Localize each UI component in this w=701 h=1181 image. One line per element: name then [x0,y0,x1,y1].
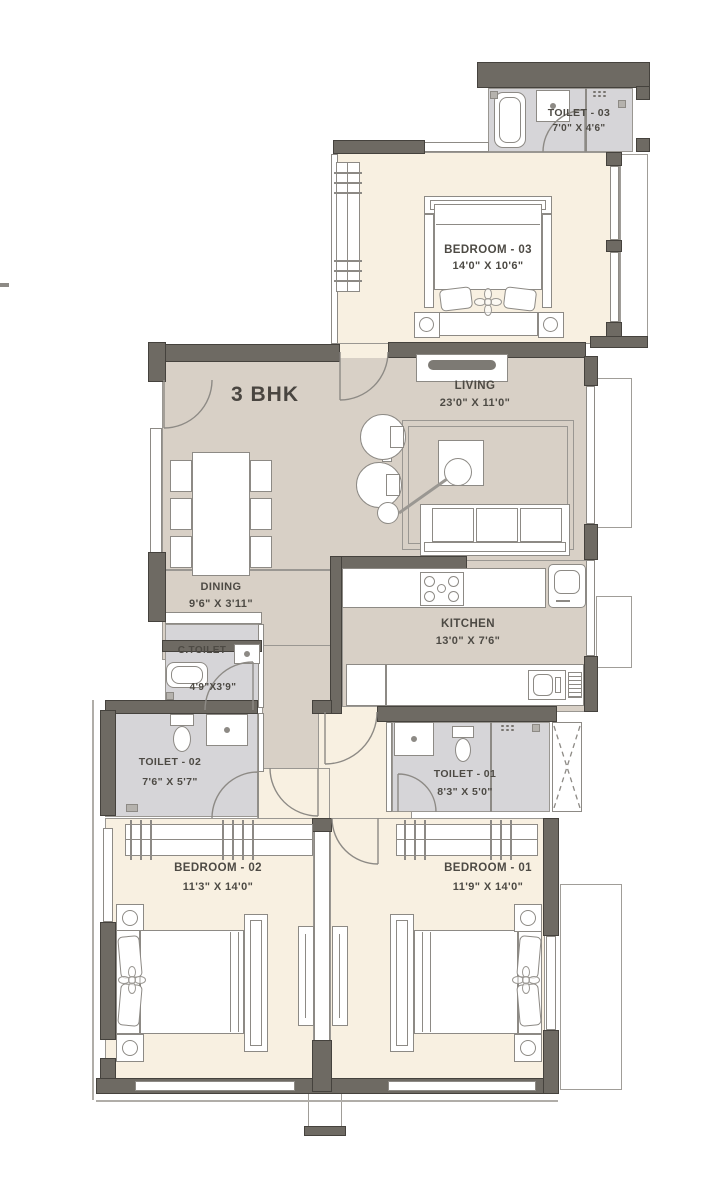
dresser [298,926,314,1026]
stove-icon [420,572,464,606]
bed-footboard-inner [250,920,262,1046]
room-label-toilet1-name: TOILET - 01 [434,769,497,780]
flower-decor-icon [512,966,540,994]
wardrobe-hatch [334,170,362,194]
nightstand-decor-icon [122,910,138,926]
pillow [439,286,473,312]
wall-band-toilet1-left [386,722,392,812]
dining-chair [170,498,192,530]
sofa-seat [520,508,562,542]
window-entry-left [150,428,162,554]
floor-drain [126,804,138,812]
room-label-bedroom2-dims: 11'3" X 14'0" [183,882,253,894]
wall-living-top-left [164,344,340,362]
room-label-toilet3-dims: 7'0" X 4'6" [552,124,605,135]
washbasin-drain [411,736,417,742]
room-label-dining-name: DINING [201,582,242,594]
shower-icon [592,90,608,99]
floor-plan: TOILET - 03 7'0" X 4'6" BEDROOM - 03 14'… [0,0,701,1181]
bed-sheet-line [436,224,540,225]
wall [312,700,332,714]
sink-tap [555,677,561,693]
wall [636,138,650,152]
window-bedroom1-right [546,936,556,1030]
room-label-ctoilet-name: C.TOILET [178,646,227,657]
wall [584,356,598,386]
wall-kitchen-right [584,656,598,712]
room-label-kitchen-name: KITCHEN [441,618,495,630]
wall-kitchen-left [330,556,342,714]
bedroom3-door-gap [340,344,388,358]
floor-drain [166,692,174,700]
site-line-left [92,700,94,1100]
bed-sheet-line [422,932,423,1032]
nightstand-decor-icon [520,1040,536,1056]
toilet-wc-bowl [455,738,471,762]
window-living-right [586,386,595,524]
floor-drain [490,91,498,99]
nightstand-decor-icon [520,910,536,926]
room-label-kitchen-dims: 13'0" X 7'6" [436,636,501,648]
wall-band-kitchen-right [586,560,595,656]
wall [606,240,622,252]
wall-toilet3-top [477,62,650,88]
chajja-living-right [592,378,632,528]
room-label-bedroom1-dims: 11'9" X 14'0" [453,882,523,894]
plan-title: 3 BHK [231,384,299,406]
room-label-bedroom1-name: BEDROOM - 01 [444,862,532,874]
wall-kitchen-bottom [377,706,557,722]
sink-bowl [533,674,553,696]
sofa-backrest [424,542,566,552]
washbasin-drain [244,651,250,657]
sofa-seat [476,508,518,542]
bed-mattress-bedroom2 [140,930,244,1034]
wall-bedroom1-right-bottom [543,1030,559,1094]
wall-entry-stub [148,342,166,382]
wardrobe-hatch [404,820,434,860]
wardrobe-hatch [490,820,520,860]
divider-toilet1 [490,722,492,812]
room-label-ctoilet-dims: 4'9"X3'9" [190,683,237,694]
chajja-top-right [620,154,648,338]
toilet-wc-icon [452,726,474,738]
room-label-toilet2-name: TOILET - 02 [139,757,202,768]
wall-band-bedroom-divider [314,820,330,1042]
nightstand-decor-icon [419,317,434,332]
shower-icon [500,724,516,733]
wall [636,86,650,100]
wall-band-ctoilet-right [258,624,264,708]
chajja-bottom-right [560,884,622,1090]
toilet-wc-bowl [173,726,191,752]
wall [584,524,598,560]
divider-toilet3 [585,88,587,152]
bed-sheet-line [230,932,231,1032]
bed-footboard-inner [396,920,408,1046]
fridge-handle [556,600,570,602]
dresser [332,926,348,1026]
dresser-line [305,934,306,1018]
wall-left-mid [148,552,166,622]
nightstand-decor-icon [122,1040,138,1056]
site-line-bottom [96,1100,558,1102]
washing-machine [346,664,386,706]
wall-bedroom3-bottom-right [590,336,648,348]
wall [304,1126,346,1136]
armchair-seat [390,426,404,448]
floor-drain [618,100,626,108]
dining-table [192,452,250,576]
edge-mark [0,283,9,287]
wall-toilet2-top [105,700,258,714]
window-dining-bottom [165,612,262,624]
bed-rail-right [542,214,552,308]
wall-left-chunk [100,922,116,1040]
window-bedroom1-bottom [388,1081,536,1091]
room-label-living-name: LIVING [455,380,496,392]
bedroom2-nook-floor [258,768,330,820]
nightstand-decor-icon [543,317,558,332]
armchair-seat [386,474,400,496]
dresser-line [339,934,340,1018]
dining-chair [250,536,272,568]
sofa-seat [432,508,474,542]
bathtub-inner [499,97,521,143]
floor-drain [532,724,540,732]
dining-chair [250,498,272,530]
room-label-toilet3-name: TOILET - 03 [548,108,611,119]
fridge-inner [554,570,580,594]
dining-chair [250,460,272,492]
bottom-center-duct [308,1092,342,1128]
wall-bedroom3-topleft [333,140,425,154]
room-label-bedroom2-name: BEDROOM - 02 [174,862,262,874]
wardrobe-hatch [130,820,160,860]
room-label-bedroom3-dims: 14'0" X 10'6" [452,261,523,273]
room-label-toilet1-dims: 8'3" X 5'0" [437,787,493,798]
wardrobe-hatch [222,820,256,860]
window-bedroom3-right-b [610,252,619,322]
window-bedroom2-bottom [135,1081,295,1091]
wardrobe-hatch [334,258,362,282]
room-label-bedroom3-name: BEDROOM - 03 [444,244,532,256]
bed-sheet-line [238,932,239,1032]
bed-sheet-line [430,932,431,1032]
drainboard-icon [568,672,582,698]
window-bedroom2-left [103,828,113,922]
pillow [503,286,537,312]
washbasin-drain [224,727,230,733]
duct-shaft [552,722,582,812]
chajja-kitchen-right [596,596,632,668]
window-bedroom3-right-a [610,166,619,240]
wall-band-toilet2-right [258,713,264,772]
flower-decor-icon [118,966,146,994]
room-label-dining-dims: 9'6" X 3'11" [189,599,253,611]
floor-lamp-icon [377,502,399,524]
wall-divider-bottom [312,1040,332,1092]
bed-rail-left [424,214,434,308]
wall [312,818,332,832]
dining-chair [170,460,192,492]
wall-toilet2-left [100,710,116,816]
room-label-toilet2-dims: 7'6" X 5'7" [142,777,198,788]
window-bedroom3-top-gap [423,142,489,152]
toilet-wc-icon [170,714,194,726]
flower-decor-icon [474,288,502,316]
tv-icon [428,360,496,370]
coffee-table-top [444,458,472,486]
dining-chair [170,536,192,568]
wall-bedroom1-right-top [543,818,559,936]
room-label-living-dims: 23'0" X 11'0" [440,398,510,410]
wall [606,152,622,166]
